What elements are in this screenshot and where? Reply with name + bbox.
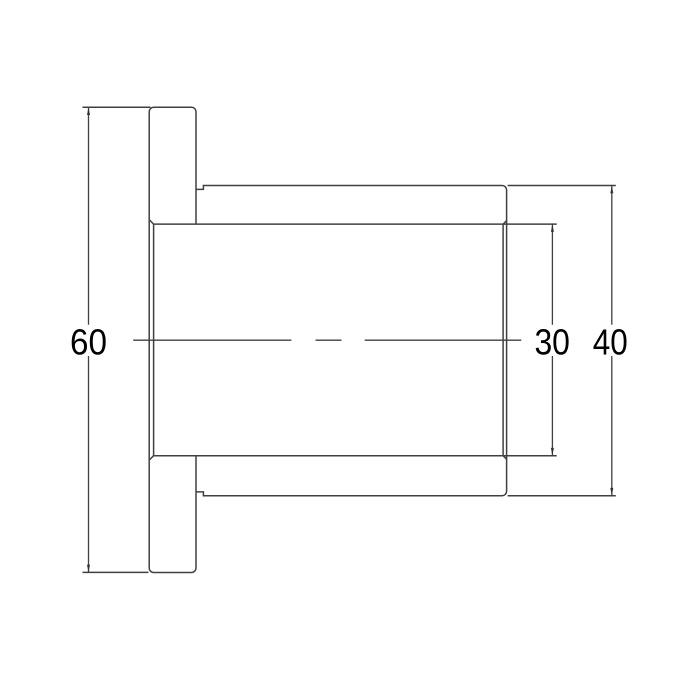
svg-text:40: 40 [593,322,628,363]
svg-text:30: 30 [534,322,570,363]
svg-text:60: 60 [70,322,107,363]
